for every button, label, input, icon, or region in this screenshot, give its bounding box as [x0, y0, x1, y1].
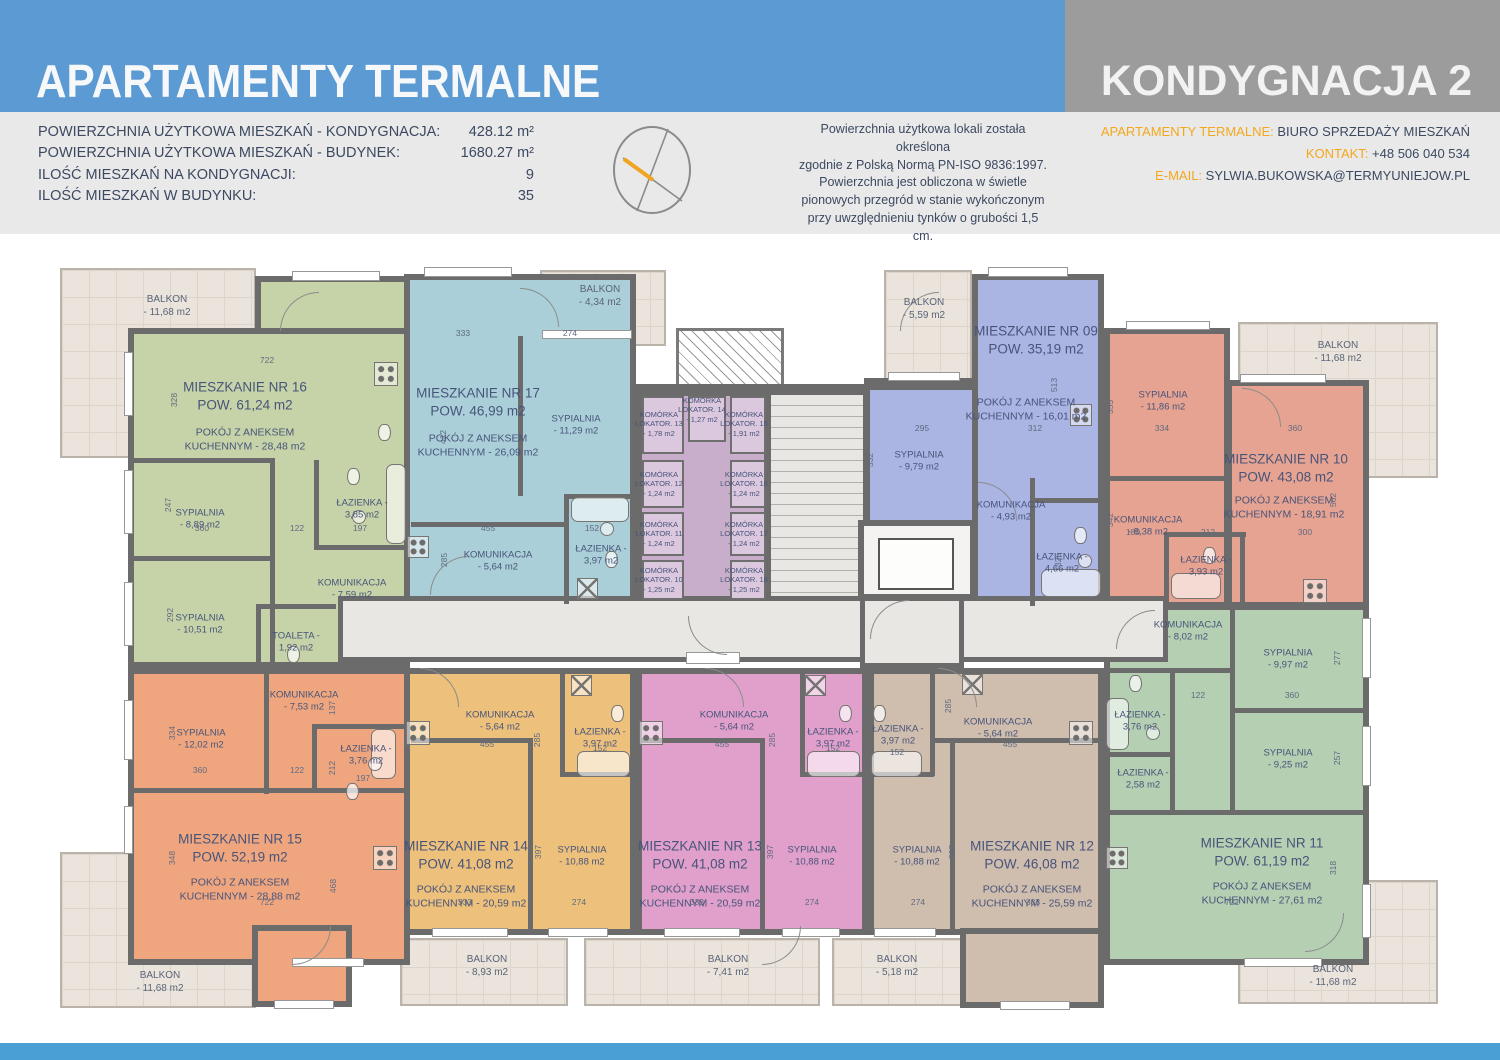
contact-email: E-MAIL: SYLWIA.BUKOWSKA@TERMYUNIEJOW.PL — [1155, 168, 1470, 183]
dimension-label: 412 — [438, 430, 448, 444]
contact-office: APARTAMENTY TERMALNE: BIURO SPRZEDAŻY MI… — [1101, 124, 1470, 139]
room-label: KOMUNIKACJA- 7,59 m2 — [318, 578, 387, 603]
room-label: SYPIALNIA- 11,29 m2 — [551, 414, 600, 439]
room-label: SYPIALNIA- 9,79 m2 — [894, 450, 943, 475]
washer-icon — [805, 675, 826, 696]
storage-label: KOMÓRKALOKATOR. 17- 1,24 m2 — [720, 520, 768, 548]
dimension-label: 332 — [865, 453, 875, 467]
dimension-label: 722 — [260, 355, 274, 365]
stove-icon — [407, 536, 429, 558]
storage-label: KOMÓRKALOKATOR. 18- 1,25 m2 — [720, 566, 768, 594]
balcony-label: BALKON- 8,93 m2 — [466, 953, 508, 979]
dimension-label: 274 — [563, 328, 577, 338]
stove-icon — [1069, 721, 1093, 745]
dimension-label: 342 — [1105, 513, 1115, 527]
storage-label: KOMÓRKALOKATOR. 11- 1,24 m2 — [635, 520, 682, 548]
dimension-label: 285 — [943, 699, 953, 713]
storage-label: KOMÓRKALOKATOR. 15- 1,91 m2 — [720, 410, 768, 438]
storage-label: KOMÓRKALOKATOR. 10- 1,25 m2 — [635, 566, 683, 594]
stove-icon — [1106, 847, 1128, 869]
dimension-label: 285 — [439, 553, 449, 567]
dimension-label: 333 — [1026, 897, 1040, 907]
dimension-label: 333 — [456, 328, 470, 338]
toilet-icon — [346, 783, 359, 800]
dimension-label: 360 — [1285, 690, 1299, 700]
room-label: ŁAZIENKA -3,93 m2 — [1180, 555, 1231, 580]
dimension-label: 455 — [480, 739, 494, 749]
dimension-label: 292 — [165, 608, 175, 622]
apartment-11-kitchen-label: POKÓJ Z ANEKSEMKUCHENNYM - 27,61 m2 — [1202, 880, 1323, 907]
apartment-16-title: MIESZKANIE NR 16POW. 61,24 m2 — [183, 378, 307, 413]
stat-row: ILOŚĆ MIESZKAŃ NA KONDYGNACJI:9 — [38, 167, 534, 183]
dimension-label: 333 — [690, 897, 704, 907]
bathtub-icon — [386, 464, 406, 544]
measurement-note: Powierzchnia użytkowa lokali została okr… — [798, 121, 1048, 245]
apartment-12-title: MIESZKANIE NR 12POW. 46,08 m2 — [970, 837, 1094, 872]
page-title: APARTAMENTY TERMALNE — [36, 58, 600, 104]
dimension-label: 152 — [890, 747, 904, 757]
apartment-15-kitchen-label: POKÓJ Z ANEKSEMKUCHENNYM - 28,88 m2 — [180, 876, 301, 903]
balcony-label: BALKON- 11,68 m2 — [136, 969, 183, 995]
dimension-label: 247 — [163, 498, 173, 512]
dimension-label: 137 — [327, 701, 337, 715]
room-label: SYPIALNIA- 11,86 m2 — [1138, 390, 1187, 415]
apartment-10-kitchen-label: POKÓJ Z ANEKSEMKUCHENNYM - 18,91 m2 — [1224, 494, 1345, 521]
room-label: KOMUNIKACJA- 5,64 m2 — [464, 550, 533, 575]
washer-icon — [571, 675, 592, 696]
apartment-10-title: MIESZKANIE NR 10POW. 43,08 m2 — [1224, 450, 1348, 485]
dimension-label: 325 — [1053, 553, 1063, 567]
apartment-17-title: MIESZKANIE NR 17POW. 46,99 m2 — [416, 384, 540, 419]
balcony-label: BALKON- 4,34 m2 — [579, 283, 621, 309]
dimension-label: 397 — [533, 845, 543, 859]
balcony-label: BALKON- 11,68 m2 — [1314, 339, 1361, 365]
room-label: KOMUNIKACJA- 4,93 m2 — [977, 500, 1046, 525]
balcony-label: BALKON- 5,18 m2 — [876, 953, 918, 979]
corridor — [338, 596, 1168, 662]
room-label: ŁAZIENKA -3,76 m2 — [1114, 710, 1165, 735]
storage-label: KOMÓRKALOKATOR. 16- 1,24 m2 — [720, 470, 768, 498]
dimension-label: 274 — [572, 897, 586, 907]
room-label: KOMUNIKACJA- 8,38 m2 — [1114, 515, 1183, 540]
dimension-label: 334 — [167, 726, 177, 740]
stat-row: POWIERZCHNIA UŻYTKOWA MIESZKAŃ - BUDYNEK… — [38, 145, 534, 161]
washer-icon — [577, 578, 598, 599]
dimension-label: 360 — [195, 523, 209, 533]
dimension-label: 277 — [1332, 651, 1342, 665]
dimension-label: 562 — [1328, 493, 1338, 507]
stove-icon — [639, 721, 663, 745]
stat-row: POWIERZCHNIA UŻYTKOWA MIESZKAŃ - KONDYGN… — [38, 124, 534, 140]
dimension-label: 152 — [593, 743, 607, 753]
balcony-label: BALKON- 11,68 m2 — [1309, 963, 1356, 989]
compass-icon — [610, 124, 694, 216]
dimension-label: 212 — [327, 761, 337, 775]
balcony-label: BALKON- 5,59 m2 — [903, 296, 945, 322]
balcony-label: BALKON- 7,41 m2 — [707, 953, 749, 979]
storage-label: KOMÓRKALOKATOR. 12- 1,24 m2 — [635, 470, 683, 498]
footer-bar — [0, 1043, 1500, 1060]
apartment-13-title: MIESZKANIE NR 13POW. 41,08 m2 — [638, 837, 762, 872]
dimension-label: 455 — [481, 523, 495, 533]
dimension-label: 152 — [585, 523, 599, 533]
dimension-label: 397 — [947, 845, 957, 859]
room-label: SYPIALNIA- 10,88 m2 — [557, 845, 606, 870]
room-label: SYPIALNIA- 12,02 m2 — [176, 728, 225, 753]
dimension-label: 455 — [715, 739, 729, 749]
floor-title: KONDYGNACJA 2 — [1065, 60, 1472, 103]
elevator — [858, 520, 976, 600]
dimension-label: 360 — [1288, 423, 1302, 433]
dimension-label: 257 — [1332, 751, 1342, 765]
toilet-icon — [873, 705, 886, 722]
room-label: ŁAZIENKA -2,58 m2 — [1117, 768, 1168, 793]
apartment-17-kitchen-label: POKÓJ Z ANEKSEMKUCHENNYM - 26,09 m2 — [418, 432, 539, 459]
dimension-label: 333 — [458, 897, 472, 907]
storage-label: KOMÓRKALOKATOR. 13- 1,78 m2 — [635, 410, 683, 438]
room-label: SYPIALNIA- 10,88 m2 — [892, 845, 941, 870]
dimension-label: 300 — [1298, 527, 1312, 537]
apartment-16-kitchen-label: POKÓJ Z ANEKSEMKUCHENNYM - 28,48 m2 — [185, 426, 306, 453]
dimension-label: 122 — [1191, 690, 1205, 700]
dimension-label: 455 — [1003, 739, 1017, 749]
room-label: ŁAZIENKA -3,85 m2 — [336, 498, 387, 523]
dimension-label: 274 — [805, 897, 819, 907]
dimension-label: 197 — [353, 523, 367, 533]
dimension-label: 397 — [765, 845, 775, 859]
apartment-11-title: MIESZKANIE NR 11POW. 61,19 m2 — [1201, 834, 1324, 869]
room-label: ŁAZIENKA -3,97 m2 — [575, 544, 626, 569]
dimension-label: 285 — [767, 733, 777, 747]
dimension-label: 197 — [356, 773, 370, 783]
stat-row: ILOŚĆ MIESZKAŃ W BUDYNKU:35 — [38, 188, 534, 204]
bathtub-icon — [571, 497, 629, 522]
dimension-label: 180 — [1126, 527, 1140, 537]
bathtub-icon — [577, 751, 630, 777]
room-label: KOMUNIKACJA- 8,02 m2 — [1154, 620, 1223, 645]
dimension-label: 468 — [328, 879, 338, 893]
dimension-label: 348 — [167, 851, 177, 865]
dimension-label: 722 — [1225, 897, 1239, 907]
apartment-15-title: MIESZKANIE NR 15POW. 52,19 m2 — [178, 830, 302, 865]
dimension-label: 318 — [1328, 861, 1338, 875]
dimension-label: 334 — [1155, 423, 1169, 433]
room-label: KOMUNIKACJA- 5,64 m2 — [466, 710, 535, 735]
stair-void-hatch — [676, 328, 784, 388]
stove-icon — [1303, 579, 1327, 603]
toilet-icon — [378, 424, 391, 441]
dimension-label: 212 — [1201, 527, 1215, 537]
elevator-car — [878, 538, 954, 590]
room-label: ŁAZIENKA -3,97 m2 — [872, 724, 923, 749]
dimension-label: 274 — [911, 897, 925, 907]
apartment-14-title: MIESZKANIE NR 14POW. 41,08 m2 — [404, 837, 528, 872]
apartment-12-area — [960, 928, 1104, 1008]
apartment-09-title: MIESZKANIE NR 09POW. 35,19 m2 — [974, 322, 1098, 357]
dimension-label: 122 — [290, 765, 304, 775]
room-label: ŁAZIENKA -3,76 m2 — [340, 744, 391, 769]
toilet-icon — [1129, 675, 1142, 692]
contact-phone: KONTAKT: +48 506 040 534 — [1306, 146, 1470, 161]
room-label: KOMUNIKACJA- 5,64 m2 — [700, 710, 769, 735]
dimension-label: 122 — [290, 523, 304, 533]
room-label: SYPIALNIA- 9,25 m2 — [1263, 748, 1312, 773]
sink-icon — [600, 522, 614, 536]
balcony-label: BALKON- 11,68 m2 — [143, 293, 190, 319]
room-label: SYPIALNIA- 9,97 m2 — [1263, 648, 1312, 673]
stove-icon — [374, 362, 398, 386]
room-label: SYPIALNIA- 10,51 m2 — [175, 613, 224, 638]
room-label: KOMUNIKACJA- 5,64 m2 — [964, 717, 1033, 742]
dimension-label: 360 — [193, 765, 207, 775]
room-label: SYPIALNIA- 10,88 m2 — [787, 845, 836, 870]
dimension-label: 355 — [1105, 400, 1115, 414]
floorplan-page: { "header": { "title": "APARTAMENTY TERM… — [0, 0, 1500, 1060]
dimension-label: 152 — [826, 743, 840, 753]
dimension-label: 312 — [1028, 423, 1042, 433]
dimension-label: 513 — [1049, 378, 1059, 392]
staircase — [766, 390, 868, 602]
apartment-09-kitchen-label: POKÓJ Z ANEKSEMKUCHENNYM - 16,01 m2 — [966, 396, 1087, 423]
bathtub-icon — [807, 751, 860, 777]
dimension-label: 328 — [169, 393, 179, 407]
room-label: TOALETA -1,92 m2 — [272, 631, 320, 656]
toilet-icon — [347, 468, 360, 485]
stove-icon — [406, 721, 430, 745]
dimension-label: 295 — [915, 423, 929, 433]
toilet-icon — [1074, 527, 1087, 544]
dimension-label: 722 — [260, 897, 274, 907]
dimension-label: 285 — [532, 733, 542, 747]
toilet-icon — [611, 705, 624, 722]
toilet-icon — [839, 705, 852, 722]
storage-label: KOMÓRKALOKATOR. 14- 1,27 m2 — [678, 396, 726, 424]
wall — [636, 384, 976, 390]
stove-icon — [373, 846, 397, 870]
